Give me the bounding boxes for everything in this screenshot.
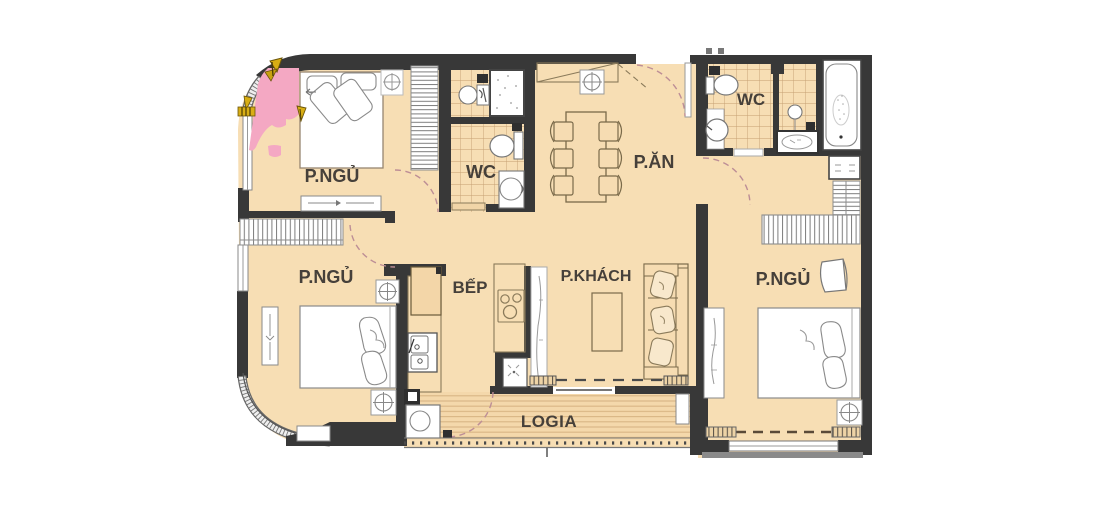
- svg-text:WC: WC: [466, 162, 496, 182]
- svg-text:BẾP: BẾP: [453, 278, 488, 297]
- svg-text:P.NGỦ: P.NGỦ: [756, 268, 811, 289]
- svg-text:P.KHÁCH: P.KHÁCH: [561, 266, 632, 285]
- svg-text:LOGIA: LOGIA: [521, 412, 577, 431]
- svg-text:P.NGỦ: P.NGỦ: [299, 266, 354, 287]
- svg-text:WC: WC: [737, 90, 765, 109]
- svg-text:P.NGỦ: P.NGỦ: [305, 165, 360, 186]
- svg-text:P.ĂN: P.ĂN: [634, 151, 675, 172]
